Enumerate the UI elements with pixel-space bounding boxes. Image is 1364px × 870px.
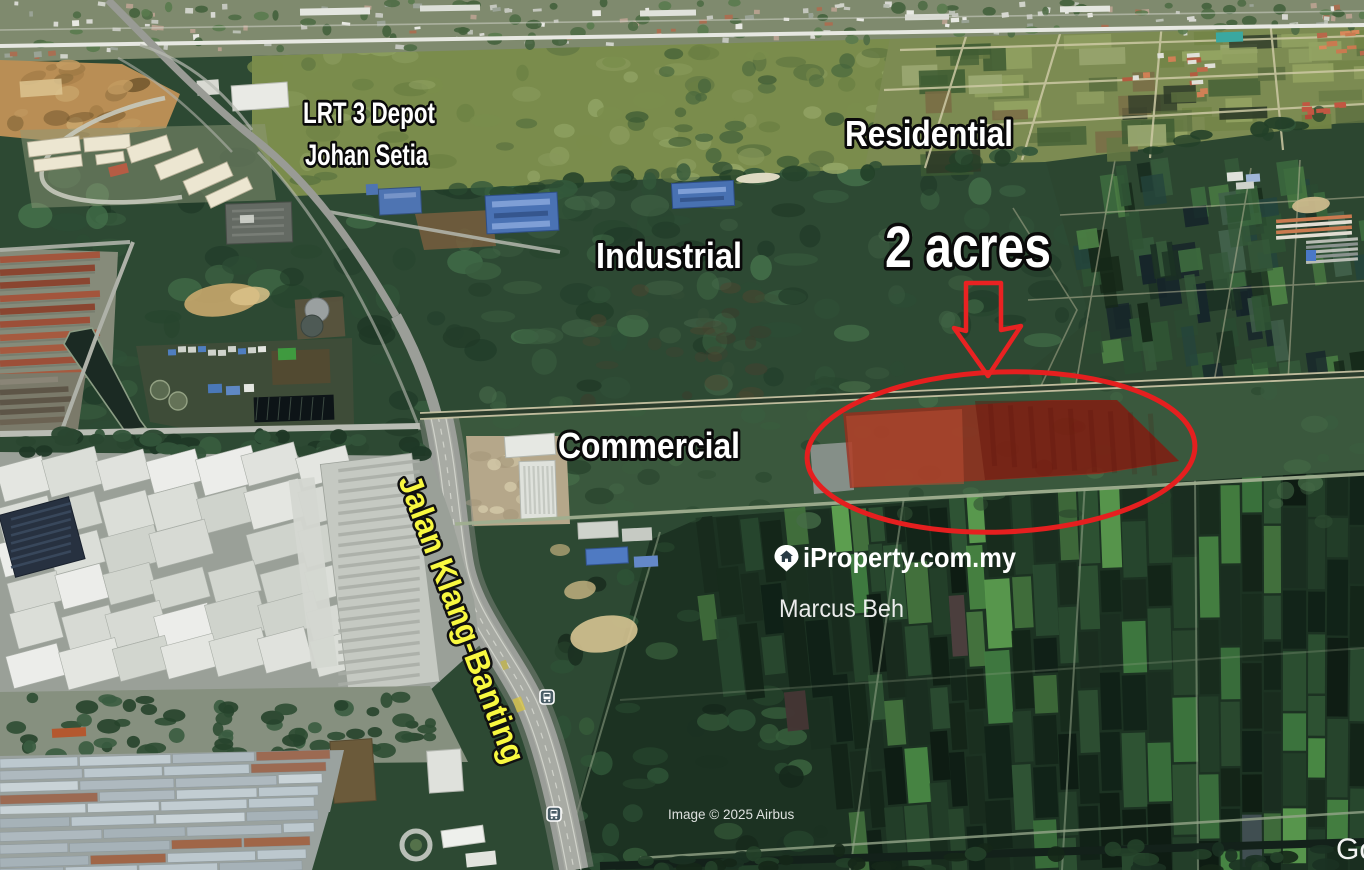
svg-text:Residential: Residential (845, 113, 1013, 154)
svg-text:Johan Setia: Johan Setia (305, 139, 428, 172)
svg-text:2 acres: 2 acres (885, 215, 1051, 280)
svg-text:Go: Go (1336, 833, 1364, 866)
svg-text:iProperty.com.my: iProperty.com.my (803, 542, 1016, 573)
svg-text:LRT 3 Depot: LRT 3 Depot (303, 97, 435, 130)
svg-text:Image © 2025 Airbus: Image © 2025 Airbus (668, 807, 795, 822)
svg-text:Commercial: Commercial (558, 425, 740, 466)
svg-text:Marcus Beh: Marcus Beh (779, 595, 904, 623)
svg-text:Industrial: Industrial (596, 235, 742, 276)
